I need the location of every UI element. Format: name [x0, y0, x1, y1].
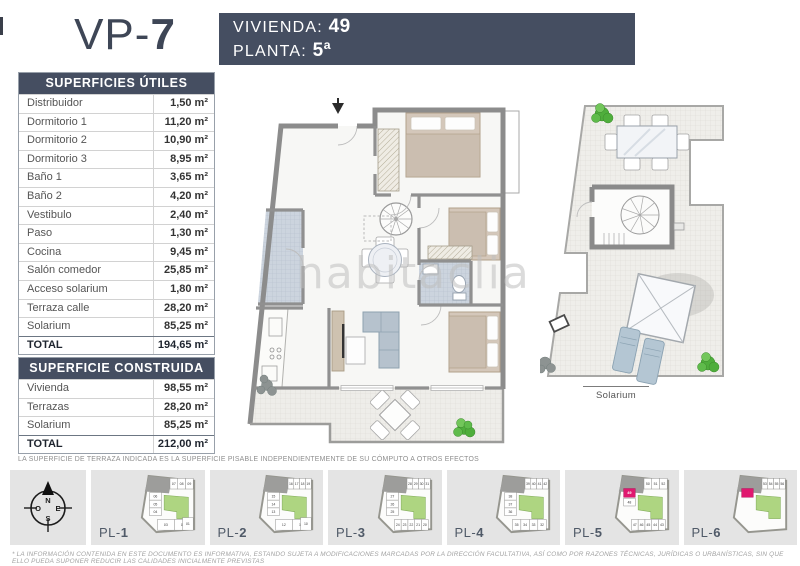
svg-text:27: 27	[390, 495, 394, 499]
svg-text:36: 36	[509, 510, 513, 514]
vivienda-line: VIVIENDA: 49	[233, 16, 635, 38]
solarium-stair-block	[577, 187, 684, 247]
svg-text:39: 39	[526, 482, 530, 486]
pl-label: PL-1	[99, 525, 128, 540]
svg-text:13: 13	[272, 510, 276, 514]
svg-text:05: 05	[153, 502, 157, 506]
floor-thumbnail-pl-3[interactable]: 282930312726252423222120PL-3	[328, 470, 442, 545]
table-row: Acceso solarium1,80 m²	[19, 280, 214, 299]
row-label: Dormitorio 1	[19, 114, 153, 132]
svg-text:44: 44	[653, 523, 657, 527]
planta-line: PLANTA: 5ª	[233, 40, 635, 62]
main-floor-plan	[245, 98, 523, 462]
table-row: Solarium85,25 m²	[19, 317, 214, 336]
row-value: 3,65 m²	[153, 169, 214, 187]
row-value: 194,65 m²	[153, 337, 214, 355]
mini-plan-2: 16171819151413121110	[256, 473, 318, 537]
svg-text:15: 15	[272, 495, 276, 499]
page-corner-mark	[0, 17, 3, 35]
solarium-label: Solarium	[583, 386, 649, 401]
row-value: 9,45 m²	[153, 244, 214, 262]
svg-text:30: 30	[419, 482, 423, 486]
tv-screen	[342, 324, 345, 358]
vivienda-value: 49	[329, 16, 351, 37]
row-label: Dormitorio 2	[19, 132, 153, 150]
row-value: 10,90 m²	[153, 132, 214, 150]
mini-plan-3: 282930312726252423222120	[375, 473, 437, 537]
table-row: Vivienda98,55 m²	[19, 379, 214, 398]
floor-thumbnail-pl-1[interactable]: 070809060504030201PL-1	[91, 470, 205, 545]
row-label: Solarium	[19, 417, 153, 435]
svg-text:07: 07	[171, 482, 175, 486]
unit-header-box: VIVIENDA: 49 PLANTA: 5ª	[219, 13, 635, 65]
svg-text:56: 56	[780, 482, 784, 486]
svg-text:23: 23	[402, 523, 406, 527]
table-row: Terraza calle28,20 m²	[19, 299, 214, 318]
svg-text:54: 54	[769, 482, 773, 486]
table-total-row: TOTAL194,65 m²	[19, 336, 214, 355]
pl-label: PL-2	[218, 525, 247, 540]
svg-text:12: 12	[282, 523, 286, 527]
street-balcony	[504, 111, 519, 193]
svg-text:22: 22	[409, 523, 413, 527]
row-label: Paso	[19, 225, 153, 243]
superficie-construida-title: SUPERFICIE CONSTRUIDA	[19, 358, 214, 379]
row-value: 4,20 m²	[153, 188, 214, 206]
row-label: Cocina	[19, 244, 153, 262]
superficie-construida-table: SUPERFICIE CONSTRUIDA Vivienda98,55 m²Te…	[18, 357, 215, 454]
row-value: 1,50 m²	[153, 95, 214, 113]
row-value: 1,80 m²	[153, 281, 214, 299]
wardrobe-bedroom1	[378, 129, 399, 191]
planta-value: 5ª	[313, 40, 332, 61]
spiral-staircase	[380, 203, 412, 235]
svg-text:28: 28	[407, 482, 411, 486]
row-label: Dormitorio 3	[19, 151, 153, 169]
svg-text:45: 45	[646, 523, 650, 527]
svg-text:24: 24	[395, 523, 399, 527]
wardrobe-bedroom2	[428, 246, 472, 259]
svg-text:53: 53	[763, 482, 767, 486]
svg-text:01: 01	[185, 522, 189, 526]
svg-text:32: 32	[540, 523, 544, 527]
row-value: 212,00 m²	[153, 436, 214, 454]
table-total-row: TOTAL212,00 m²	[19, 435, 214, 454]
svg-text:10: 10	[304, 522, 308, 526]
svg-text:09: 09	[187, 482, 191, 486]
superficies-utiles-title: SUPERFICIES ÚTILES	[19, 73, 214, 94]
svg-text:55: 55	[775, 482, 779, 486]
title-prefix: VP-	[74, 10, 150, 59]
svg-text:35: 35	[515, 523, 519, 527]
table-row: Paso1,30 m²	[19, 224, 214, 243]
superficies-utiles-table: SUPERFICIES ÚTILES Distribuidor1,50 m²Do…	[18, 72, 215, 355]
svg-text:26: 26	[390, 502, 394, 506]
row-value: 2,40 m²	[153, 207, 214, 225]
title-number: 7	[150, 10, 175, 59]
svg-text:47: 47	[632, 523, 636, 527]
solarium-plan	[540, 95, 765, 387]
svg-text:31: 31	[425, 482, 429, 486]
pl-label: PL-4	[455, 525, 484, 540]
floor-thumbnail-pl-2[interactable]: 16171819151413121110PL-2	[210, 470, 324, 545]
row-value: 85,25 m²	[153, 318, 214, 336]
svg-text:48: 48	[627, 500, 631, 504]
superficie-construida-rows: Vivienda98,55 m²Terrazas28,20 m²Solarium…	[19, 379, 214, 453]
vivienda-label: VIVIENDA:	[233, 19, 323, 36]
row-label: Vestibulo	[19, 207, 153, 225]
svg-text:25: 25	[390, 510, 394, 514]
floor-thumbnail-pl-6[interactable]: 53545556PL-6	[684, 470, 798, 545]
page-title: VP-7	[45, 6, 205, 64]
row-value: 8,95 m²	[153, 151, 214, 169]
row-label: Terrazas	[19, 399, 153, 417]
disclaimer: * LA INFORMACIÓN CONTENIDA EN ESTE DOCUM…	[12, 551, 800, 565]
svg-text:19: 19	[306, 482, 310, 486]
table-row: Cocina9,45 m²	[19, 243, 214, 262]
pl-label: PL-6	[692, 525, 721, 540]
table-row: Dormitorio 38,95 m²	[19, 150, 214, 169]
toilet-bathroom2	[453, 276, 467, 301]
row-label: Terraza calle	[19, 300, 153, 318]
table-row: Dormitorio 210,90 m²	[19, 131, 214, 150]
row-label: TOTAL	[19, 436, 153, 454]
svg-text:06: 06	[153, 495, 157, 499]
svg-text:17: 17	[295, 482, 299, 486]
row-label: Baño 1	[19, 169, 153, 187]
row-value: 11,20 m²	[153, 114, 214, 132]
svg-text:E: E	[55, 504, 60, 513]
svg-text:43: 43	[659, 523, 663, 527]
row-label: Acceso solarium	[19, 281, 153, 299]
svg-text:29: 29	[413, 482, 417, 486]
svg-text:14: 14	[272, 502, 276, 506]
table-row: Distribuidor1,50 m²	[19, 94, 214, 113]
row-label: TOTAL	[19, 337, 153, 355]
svg-text:04: 04	[153, 510, 157, 514]
svg-text:41: 41	[538, 482, 542, 486]
table-row: Baño 24,20 m²	[19, 187, 214, 206]
compass: N O E S	[10, 470, 86, 545]
table-row: Dormitorio 111,20 m²	[19, 113, 214, 132]
row-label: Vivienda	[19, 380, 153, 398]
floor-thumbnail-pl-5[interactable]: 50515249484746454443PL-5	[565, 470, 679, 545]
row-value: 25,85 m²	[153, 262, 214, 280]
svg-text:52: 52	[661, 482, 665, 486]
svg-text:49: 49	[627, 490, 631, 495]
row-label: Distribuidor	[19, 95, 153, 113]
svg-text:34: 34	[523, 523, 527, 527]
svg-text:37: 37	[509, 502, 513, 506]
svg-text:16: 16	[289, 482, 293, 486]
svg-text:42: 42	[543, 482, 547, 486]
superficies-utiles-rows: Distribuidor1,50 m²Dormitorio 111,20 m²D…	[19, 94, 214, 354]
mini-plan-5: 50515249484746454443	[612, 473, 674, 537]
svg-text:51: 51	[653, 482, 657, 486]
mini-plan-1: 070809060504030201	[138, 473, 200, 537]
row-value: 28,20 m²	[153, 300, 214, 318]
floor-thumbnail-pl-4[interactable]: 3940414238373635343332PL-4	[447, 470, 561, 545]
mini-plan-6: 53545556	[730, 473, 792, 537]
bed-3	[449, 312, 500, 372]
floor-thumbnails-strip: N O E S 070809060504030201PL-11617181915…	[10, 470, 797, 545]
pl-label: PL-3	[336, 525, 365, 540]
table-row: Salón comedor25,85 m²	[19, 261, 214, 280]
svg-text:40: 40	[532, 482, 536, 486]
row-value: 28,20 m²	[153, 399, 214, 417]
table-row: Terrazas28,20 m²	[19, 398, 214, 417]
svg-text:33: 33	[532, 523, 536, 527]
svg-text:S: S	[45, 514, 50, 523]
svg-text:N: N	[45, 496, 50, 505]
table-row: Baño 13,65 m²	[19, 168, 214, 187]
svg-text:20: 20	[422, 523, 426, 527]
svg-text:21: 21	[416, 523, 420, 527]
mini-plan-4: 3940414238373635343332	[493, 473, 555, 537]
row-value: 85,25 m²	[153, 417, 214, 435]
svg-text:46: 46	[639, 523, 643, 527]
planta-label: PLANTA:	[233, 43, 307, 60]
table-row: Vestibulo2,40 m²	[19, 206, 214, 225]
svg-text:38: 38	[509, 495, 513, 499]
pl-label: PL-5	[573, 525, 602, 540]
compass-icon: N O E S	[10, 470, 86, 545]
svg-text:50: 50	[645, 482, 649, 486]
svg-text:03: 03	[163, 523, 167, 527]
table-row: Solarium85,25 m²	[19, 416, 214, 435]
row-value: 1,30 m²	[153, 225, 214, 243]
svg-text:18: 18	[301, 482, 305, 486]
entrance-arrow-icon	[332, 98, 344, 114]
bed-1	[406, 113, 480, 177]
row-label: Baño 2	[19, 188, 153, 206]
row-value: 98,55 m²	[153, 380, 214, 398]
svg-text:O: O	[35, 504, 41, 513]
svg-text:08: 08	[179, 482, 183, 486]
row-label: Salón comedor	[19, 262, 153, 280]
row-label: Solarium	[19, 318, 153, 336]
coffee-table	[346, 337, 365, 364]
dining-table	[369, 244, 402, 277]
